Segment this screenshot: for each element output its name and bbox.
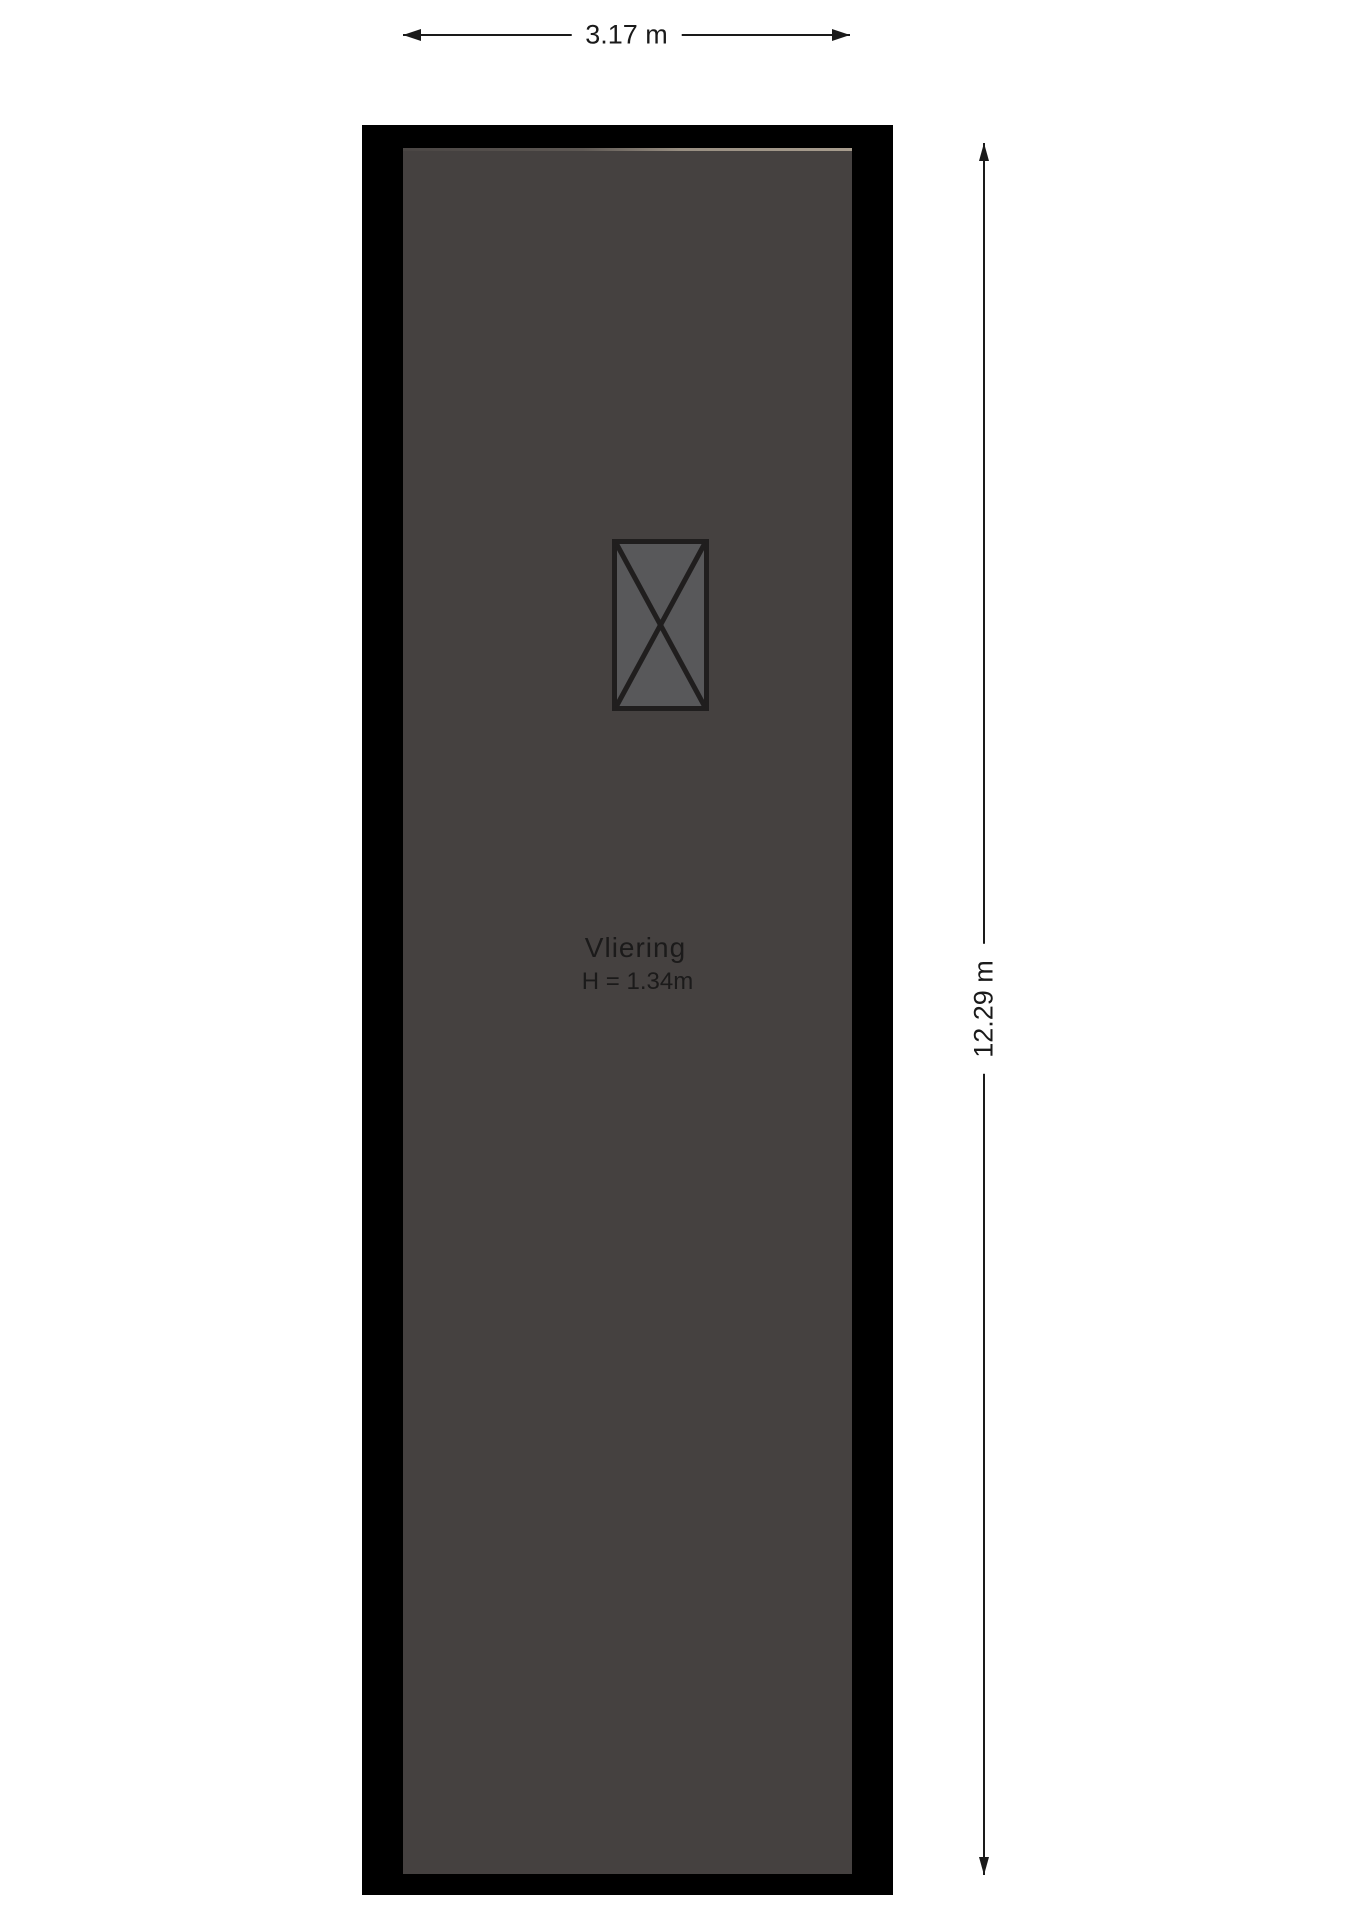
room-ceiling-height-label: H = 1.34m	[413, 968, 862, 996]
floorplan-canvas: 3.17 m 12.29 m Vliering H = 1.34m	[0, 0, 1358, 1920]
width-dimension-label: 3.17 m	[571, 18, 682, 53]
room-label-block: Vliering H = 1.34m	[403, 932, 852, 996]
room-wall-outline: Vliering H = 1.34m	[362, 125, 893, 1895]
floor-top-edge-highlight	[403, 148, 852, 151]
room-floor-area: Vliering H = 1.34m	[403, 148, 852, 1874]
width-dimension-line: 3.17 m	[403, 34, 850, 36]
depth-dimension-line: 12.29 m	[983, 143, 985, 1875]
arrow-right-icon	[832, 29, 850, 41]
stair-hatch-icon	[612, 539, 709, 711]
arrow-left-icon	[403, 29, 421, 41]
depth-dimension-label: 12.29 m	[967, 944, 1002, 1074]
room-name-label: Vliering	[411, 932, 860, 964]
arrow-up-icon	[979, 143, 989, 161]
arrow-down-icon	[979, 1857, 989, 1875]
